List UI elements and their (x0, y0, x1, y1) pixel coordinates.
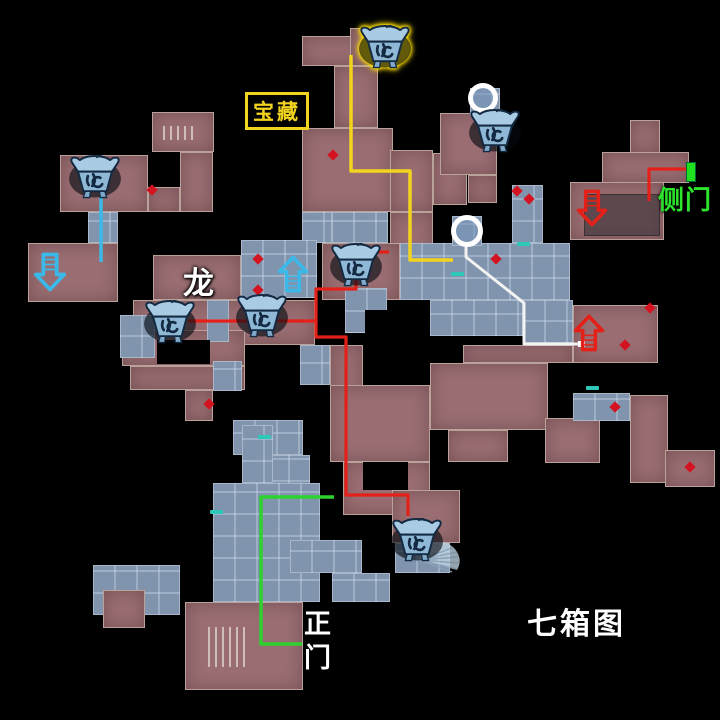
chest-icon[interactable] (141, 297, 199, 347)
white-route (466, 243, 581, 344)
map-title: 七箱图 (527, 599, 626, 643)
main-gate-label: 正 门 (304, 607, 331, 675)
main-gate-label-line1: 正 (304, 607, 331, 641)
stairs-up-arrow-icon (276, 255, 310, 293)
side-door-marker (686, 162, 696, 182)
chest-icon[interactable] (466, 106, 524, 156)
map-canvas[interactable]: 宝藏 侧门 龙 正 门 七箱图 (0, 0, 720, 720)
stairs-up-arrow-icon (572, 314, 606, 352)
dragon-label: 龙 (183, 258, 214, 303)
stairs-down-arrow-icon (576, 189, 608, 227)
treasure-route (351, 55, 453, 260)
treasure-chest-icon[interactable] (356, 22, 414, 72)
chest-icon[interactable] (233, 291, 291, 341)
chest-icon[interactable] (66, 152, 124, 202)
spawn-circle-marker (451, 215, 483, 247)
red-route-branch (316, 321, 408, 516)
treasure-label: 宝藏 (245, 92, 309, 130)
side-door-label: 侧门 (658, 180, 712, 217)
main-gate-label-line2: 门 (304, 641, 331, 675)
chest-icon[interactable] (327, 240, 385, 290)
chest-icon[interactable] (388, 515, 446, 565)
stairs-down-arrow-icon (33, 252, 67, 292)
